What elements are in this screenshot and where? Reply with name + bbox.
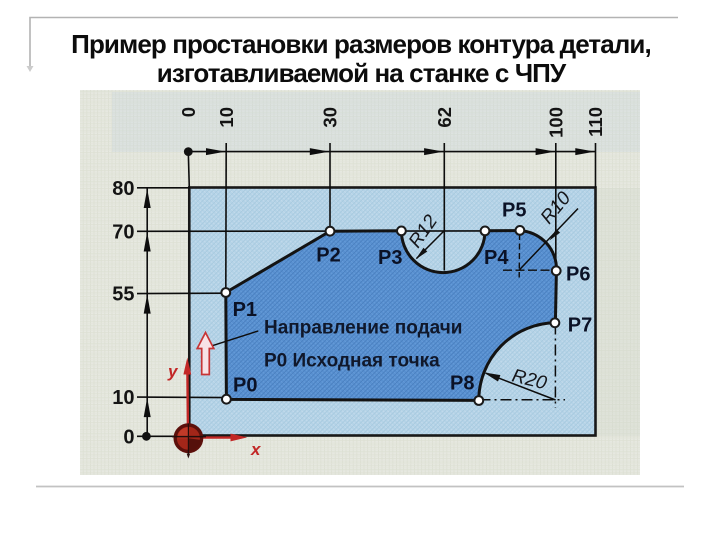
svg-text:55: 55 bbox=[112, 284, 134, 306]
svg-text:P0 Исходная точка: P0 Исходная точка bbox=[264, 351, 440, 372]
svg-text:0: 0 bbox=[178, 107, 199, 117]
svg-text:100: 100 bbox=[545, 107, 566, 138]
svg-text:y: y bbox=[167, 362, 179, 381]
svg-text:10: 10 bbox=[216, 107, 237, 128]
svg-text:62: 62 bbox=[434, 107, 455, 128]
svg-text:P7: P7 bbox=[568, 315, 592, 337]
svg-text:P6: P6 bbox=[566, 264, 590, 286]
svg-text:0: 0 bbox=[123, 426, 134, 448]
svg-text:P5: P5 bbox=[502, 200, 526, 222]
svg-text:P8: P8 bbox=[450, 373, 474, 395]
svg-text:70: 70 bbox=[112, 221, 134, 243]
svg-text:P4: P4 bbox=[484, 247, 509, 269]
svg-text:Направление подачи: Направление подачи bbox=[264, 318, 462, 339]
svg-text:110: 110 bbox=[585, 107, 606, 137]
svg-text:x: x bbox=[250, 440, 262, 459]
svg-text:P1: P1 bbox=[233, 299, 257, 321]
svg-text:80: 80 bbox=[112, 178, 134, 200]
svg-text:P0: P0 bbox=[233, 375, 257, 397]
svg-text:30: 30 bbox=[320, 107, 341, 128]
svg-text:P2: P2 bbox=[316, 245, 340, 267]
svg-text:10: 10 bbox=[112, 387, 134, 409]
svg-text:P3: P3 bbox=[378, 247, 402, 269]
